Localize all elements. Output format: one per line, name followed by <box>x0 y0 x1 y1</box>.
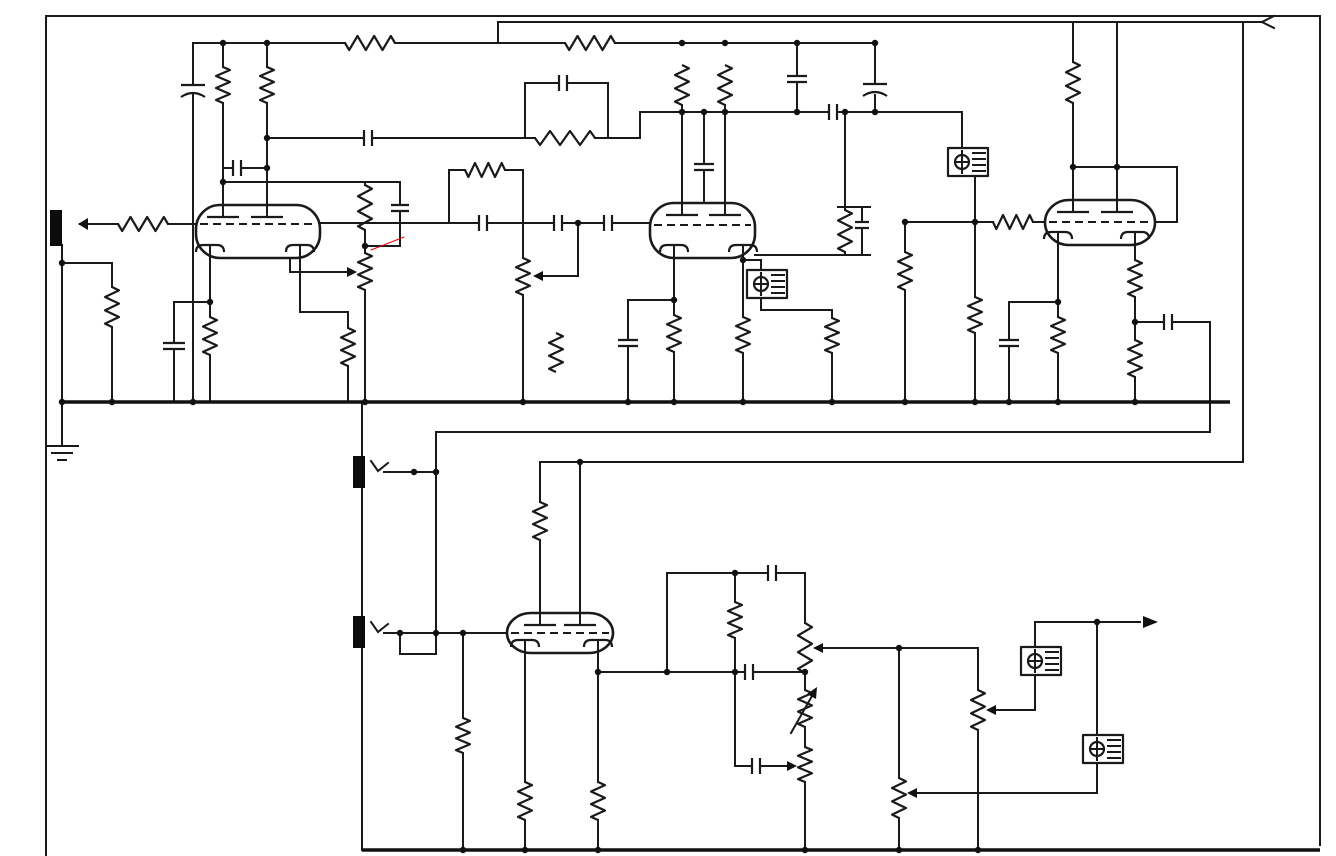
resistor <box>203 317 217 355</box>
junction-dot <box>220 40 226 46</box>
junction-dot <box>902 219 908 225</box>
junction-dot <box>794 40 800 46</box>
resistor <box>968 297 982 333</box>
effects-return-jack <box>353 616 365 648</box>
resistor <box>798 623 812 673</box>
arrowhead <box>533 271 543 281</box>
junction-dot <box>722 109 728 115</box>
junction-dot <box>520 399 526 405</box>
wire <box>1262 22 1274 28</box>
resistor <box>105 287 119 327</box>
junction-dot <box>732 570 738 576</box>
resistor <box>892 778 906 818</box>
junction-dot <box>190 399 196 405</box>
resistor <box>565 36 615 50</box>
resistor <box>591 782 605 820</box>
junction-dot <box>1055 299 1061 305</box>
resistor <box>825 318 839 353</box>
junction-dot <box>595 669 601 675</box>
junction-dot <box>362 243 368 249</box>
jack-contact <box>371 461 388 471</box>
resistor <box>260 67 274 103</box>
resistor <box>535 131 595 145</box>
schematic-page <box>0 0 1336 856</box>
resistor <box>718 65 732 105</box>
resistor <box>736 317 750 353</box>
junction-dot <box>220 179 226 185</box>
junction-dot <box>595 847 601 853</box>
junction-dot <box>679 109 685 115</box>
junction-dot <box>740 257 746 263</box>
junction-dot <box>362 399 368 405</box>
junction-dot <box>722 40 728 46</box>
junction-dot <box>264 135 270 141</box>
arrowhead <box>78 218 88 230</box>
arrowhead <box>347 267 357 277</box>
resistor <box>549 333 563 372</box>
junction-dot <box>671 399 677 405</box>
junction-dot <box>264 40 270 46</box>
junction-dot <box>1132 399 1138 405</box>
junction-dot <box>972 399 978 405</box>
resistor <box>118 217 168 231</box>
resistor <box>518 782 532 820</box>
junction-dot <box>802 669 808 675</box>
junction-dot <box>1114 164 1120 170</box>
junction-dot <box>802 847 808 853</box>
jack-contact <box>371 622 388 632</box>
junction-dot <box>625 399 631 405</box>
junction-dot <box>740 399 746 405</box>
resistor <box>971 690 985 730</box>
junction-dot <box>460 630 466 636</box>
junction-dot <box>842 109 848 115</box>
junction-dot <box>975 847 981 853</box>
resistor <box>341 328 355 366</box>
tube-v3 <box>1045 200 1155 245</box>
resistor <box>465 163 505 177</box>
junction-dot <box>59 260 65 266</box>
junction-dot <box>207 299 213 305</box>
input-jack <box>50 210 62 246</box>
junction-dot <box>896 645 902 651</box>
junction-dot <box>575 220 581 226</box>
tube-v1 <box>196 205 320 258</box>
junction-dot <box>577 459 583 465</box>
resistor <box>1066 62 1080 103</box>
resistor <box>1128 340 1142 377</box>
arrowhead <box>787 761 797 771</box>
junction-dot <box>1094 619 1100 625</box>
arrowhead <box>986 705 996 715</box>
resistor <box>838 210 852 252</box>
junction-dot <box>794 109 800 115</box>
resistor <box>358 253 372 290</box>
junction-dot <box>872 40 878 46</box>
amp-schematic-canvas <box>0 0 1336 856</box>
arrowhead <box>1143 616 1158 628</box>
resistor <box>728 602 742 638</box>
resistor <box>456 718 470 753</box>
tube-v2 <box>650 203 755 258</box>
junction-dot <box>460 847 466 853</box>
resistor <box>1128 260 1142 297</box>
resistor <box>675 65 689 105</box>
junction-dot <box>397 630 403 636</box>
junction-dot <box>664 669 670 675</box>
arrowhead <box>813 643 823 653</box>
resistor <box>345 36 395 50</box>
resistor <box>667 315 681 352</box>
junction-dot <box>1132 319 1138 325</box>
resistor <box>533 502 547 540</box>
junction-dot <box>902 399 908 405</box>
arrowhead <box>907 788 917 798</box>
resistor <box>993 215 1033 229</box>
junction-dot <box>896 847 902 853</box>
resistor <box>516 258 530 295</box>
junction-dot <box>1055 399 1061 405</box>
junction-dot <box>972 219 978 225</box>
junction-dot <box>59 399 65 405</box>
effects-send-jack <box>353 456 365 488</box>
junction-dot <box>1006 399 1012 405</box>
junction-dot <box>522 847 528 853</box>
junction-dot <box>679 40 685 46</box>
resistor <box>1051 317 1065 353</box>
junction-dot <box>411 469 417 475</box>
resistor <box>898 252 912 290</box>
resistor <box>798 747 812 782</box>
junction-dot <box>701 109 707 115</box>
junction-dot <box>872 109 878 115</box>
resistor <box>216 67 230 103</box>
junction-dot <box>109 399 115 405</box>
junction-dot <box>1070 164 1076 170</box>
junction-dot <box>829 399 835 405</box>
junction-dot <box>264 165 270 171</box>
junction-dot <box>671 297 677 303</box>
junction-dot <box>433 469 439 475</box>
junction-dot <box>732 669 738 675</box>
junction-dot <box>433 630 439 636</box>
